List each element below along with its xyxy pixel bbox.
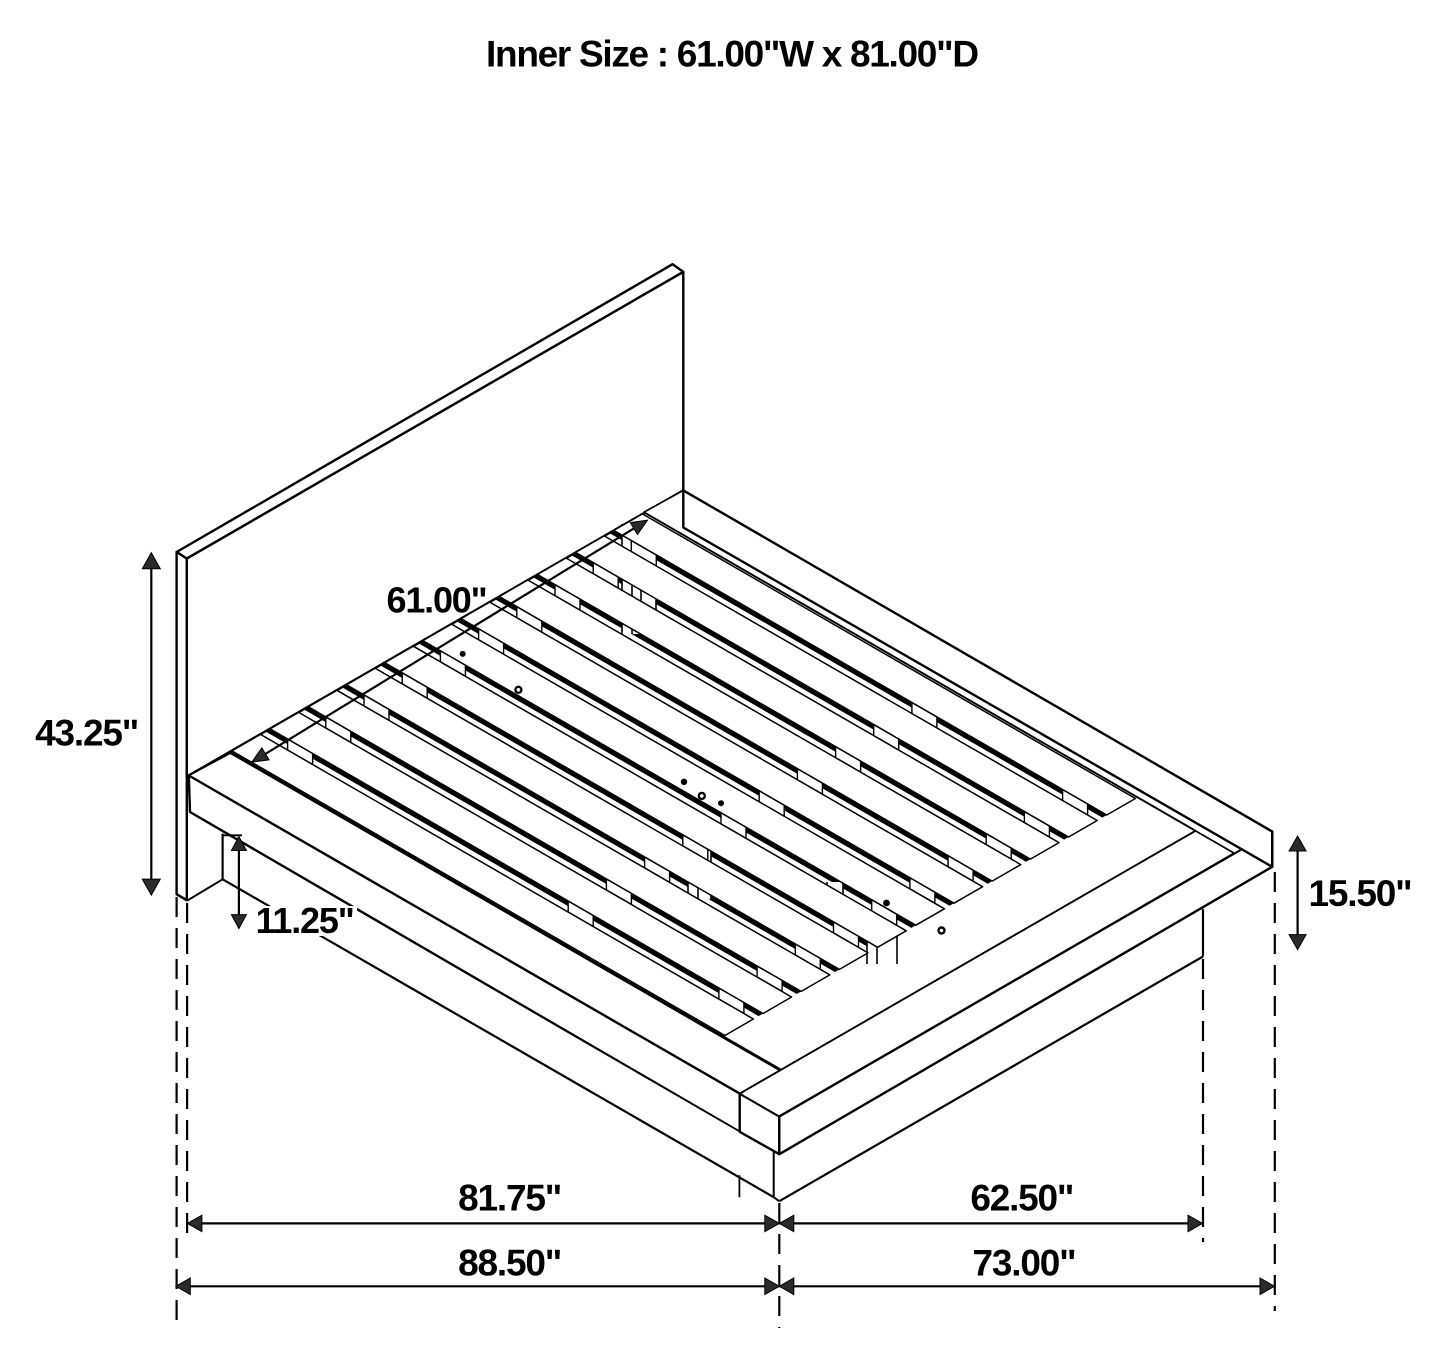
svg-text:73.00": 73.00": [973, 1243, 1076, 1284]
svg-text:88.50": 88.50": [458, 1243, 561, 1284]
svg-text:81.75": 81.75": [458, 1178, 561, 1219]
svg-text:62.50": 62.50": [970, 1178, 1073, 1219]
svg-text:Inner Size : 61.00"W x 81.00"D: Inner Size : 61.00"W x 81.00"D: [486, 33, 978, 74]
svg-text:43.25": 43.25": [35, 713, 138, 754]
svg-text:15.50": 15.50": [1309, 873, 1412, 914]
svg-text:61.00": 61.00": [387, 580, 487, 621]
svg-text:11.25": 11.25": [256, 900, 354, 941]
